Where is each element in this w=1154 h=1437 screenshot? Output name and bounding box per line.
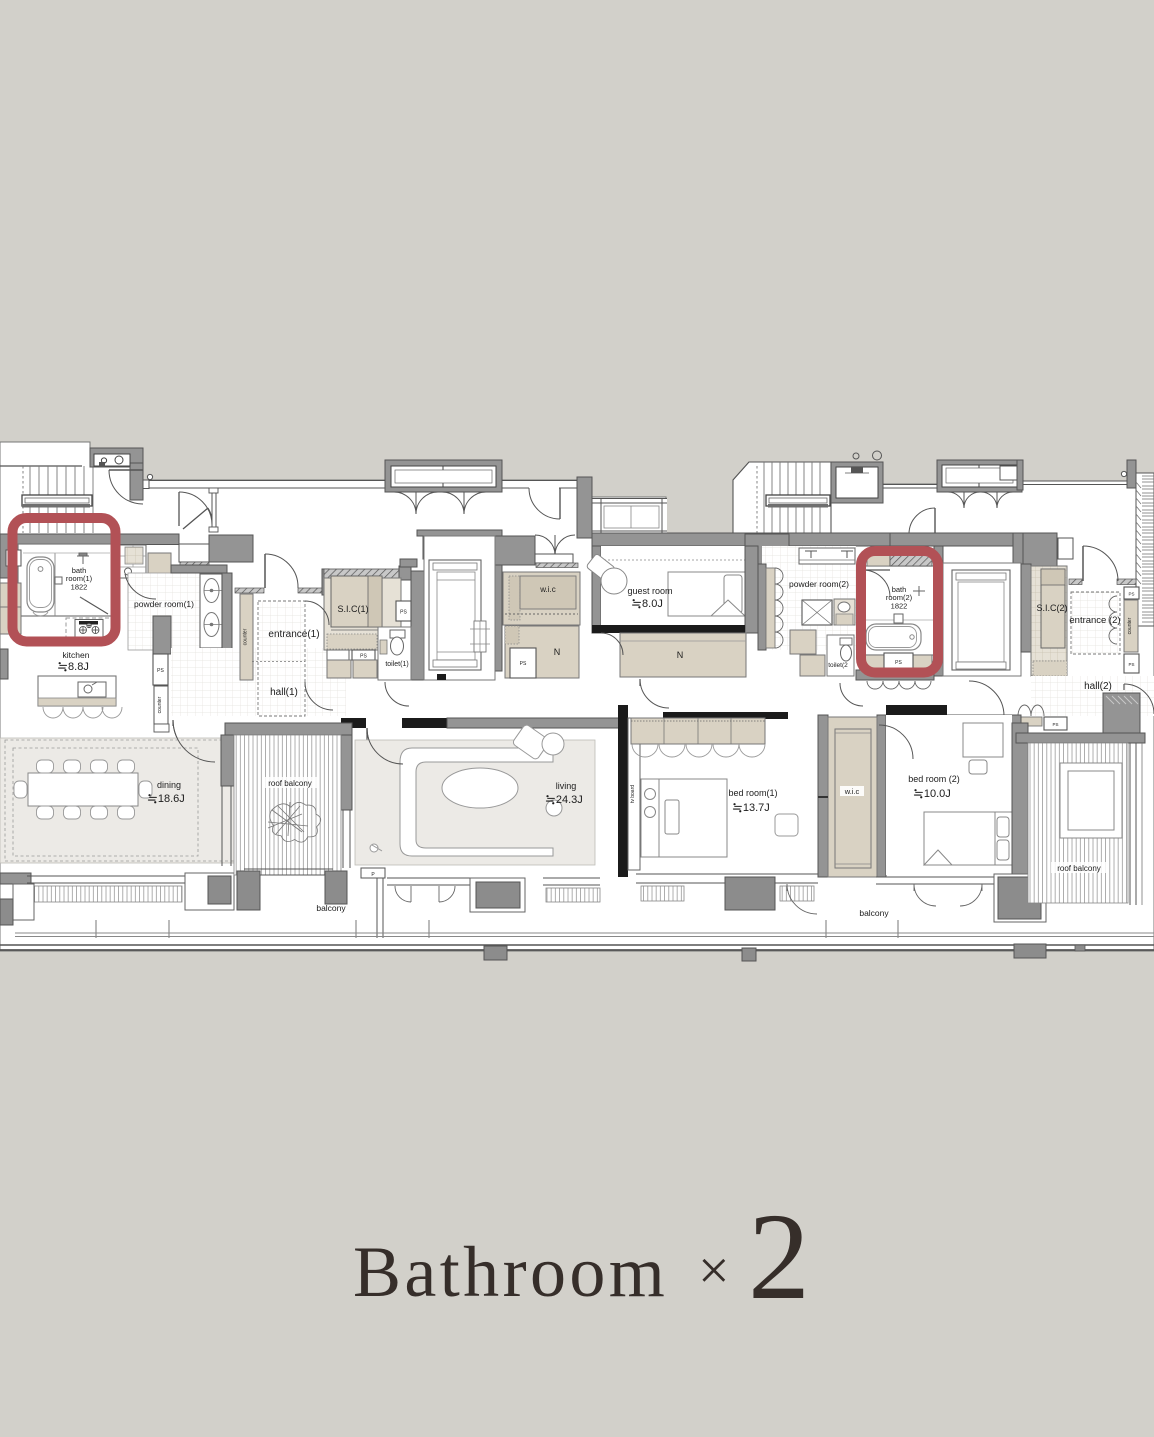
svg-text:counter: counter: [1127, 617, 1133, 634]
svg-text:N: N: [554, 647, 561, 657]
svg-text:kitchen: kitchen: [63, 650, 90, 660]
svg-text:PS: PS: [520, 661, 527, 667]
svg-text:10.0J: 10.0J: [924, 788, 951, 800]
svg-text:PS: PS: [1128, 662, 1134, 667]
svg-text:PS: PS: [895, 660, 902, 666]
svg-text:powder room(1): powder room(1): [134, 599, 194, 609]
svg-text:bed room(1): bed room(1): [728, 788, 777, 798]
svg-text:tv board: tv board: [630, 785, 636, 803]
svg-text:bed room (2): bed room (2): [908, 774, 960, 784]
svg-text:balcony: balcony: [859, 908, 889, 918]
svg-text:1822: 1822: [71, 583, 88, 592]
svg-text:PS: PS: [157, 668, 164, 674]
svg-text:S.I.C(1): S.I.C(1): [337, 604, 368, 614]
svg-text:guest room: guest room: [627, 586, 672, 596]
svg-text:S.I.C(2): S.I.C(2): [1036, 603, 1067, 613]
svg-text:powder room(2): powder room(2): [789, 579, 849, 589]
svg-text:13.7J: 13.7J: [743, 802, 770, 814]
svg-text:PS: PS: [1052, 722, 1058, 727]
svg-text:hall(1): hall(1): [270, 687, 298, 698]
svg-text:2: 2: [748, 1188, 810, 1325]
svg-text:roof balcony: roof balcony: [268, 779, 312, 788]
svg-text:1822: 1822: [891, 602, 908, 611]
svg-text:toilet(2: toilet(2: [828, 662, 848, 669]
svg-text:8.0J: 8.0J: [642, 598, 663, 610]
svg-text:entrance (2): entrance (2): [1069, 615, 1120, 626]
svg-text:N: N: [677, 650, 684, 660]
svg-text:8.8J: 8.8J: [68, 661, 89, 673]
svg-text:balcony: balcony: [316, 903, 346, 913]
svg-text:dining: dining: [157, 780, 181, 790]
svg-text:toilet(1): toilet(1): [385, 661, 408, 668]
svg-text:×: ×: [698, 1240, 730, 1302]
svg-text:entrance(1): entrance(1): [268, 629, 319, 640]
svg-text:PS: PS: [1128, 592, 1134, 597]
svg-text:counter: counter: [157, 696, 163, 713]
svg-text:counter: counter: [243, 628, 249, 645]
svg-text:w.i.c: w.i.c: [844, 787, 860, 796]
svg-text:18.6J: 18.6J: [158, 793, 185, 805]
svg-text:roof balcony: roof balcony: [1057, 864, 1101, 873]
svg-text:living: living: [556, 781, 577, 791]
svg-text:PS: PS: [360, 654, 367, 660]
svg-text:PS: PS: [400, 610, 407, 616]
svg-text:24.3J: 24.3J: [556, 794, 583, 806]
svg-text:hall(2): hall(2): [1084, 681, 1112, 692]
svg-text:w.i.c: w.i.c: [539, 585, 556, 594]
svg-text:Bathroom: Bathroom: [353, 1232, 668, 1312]
